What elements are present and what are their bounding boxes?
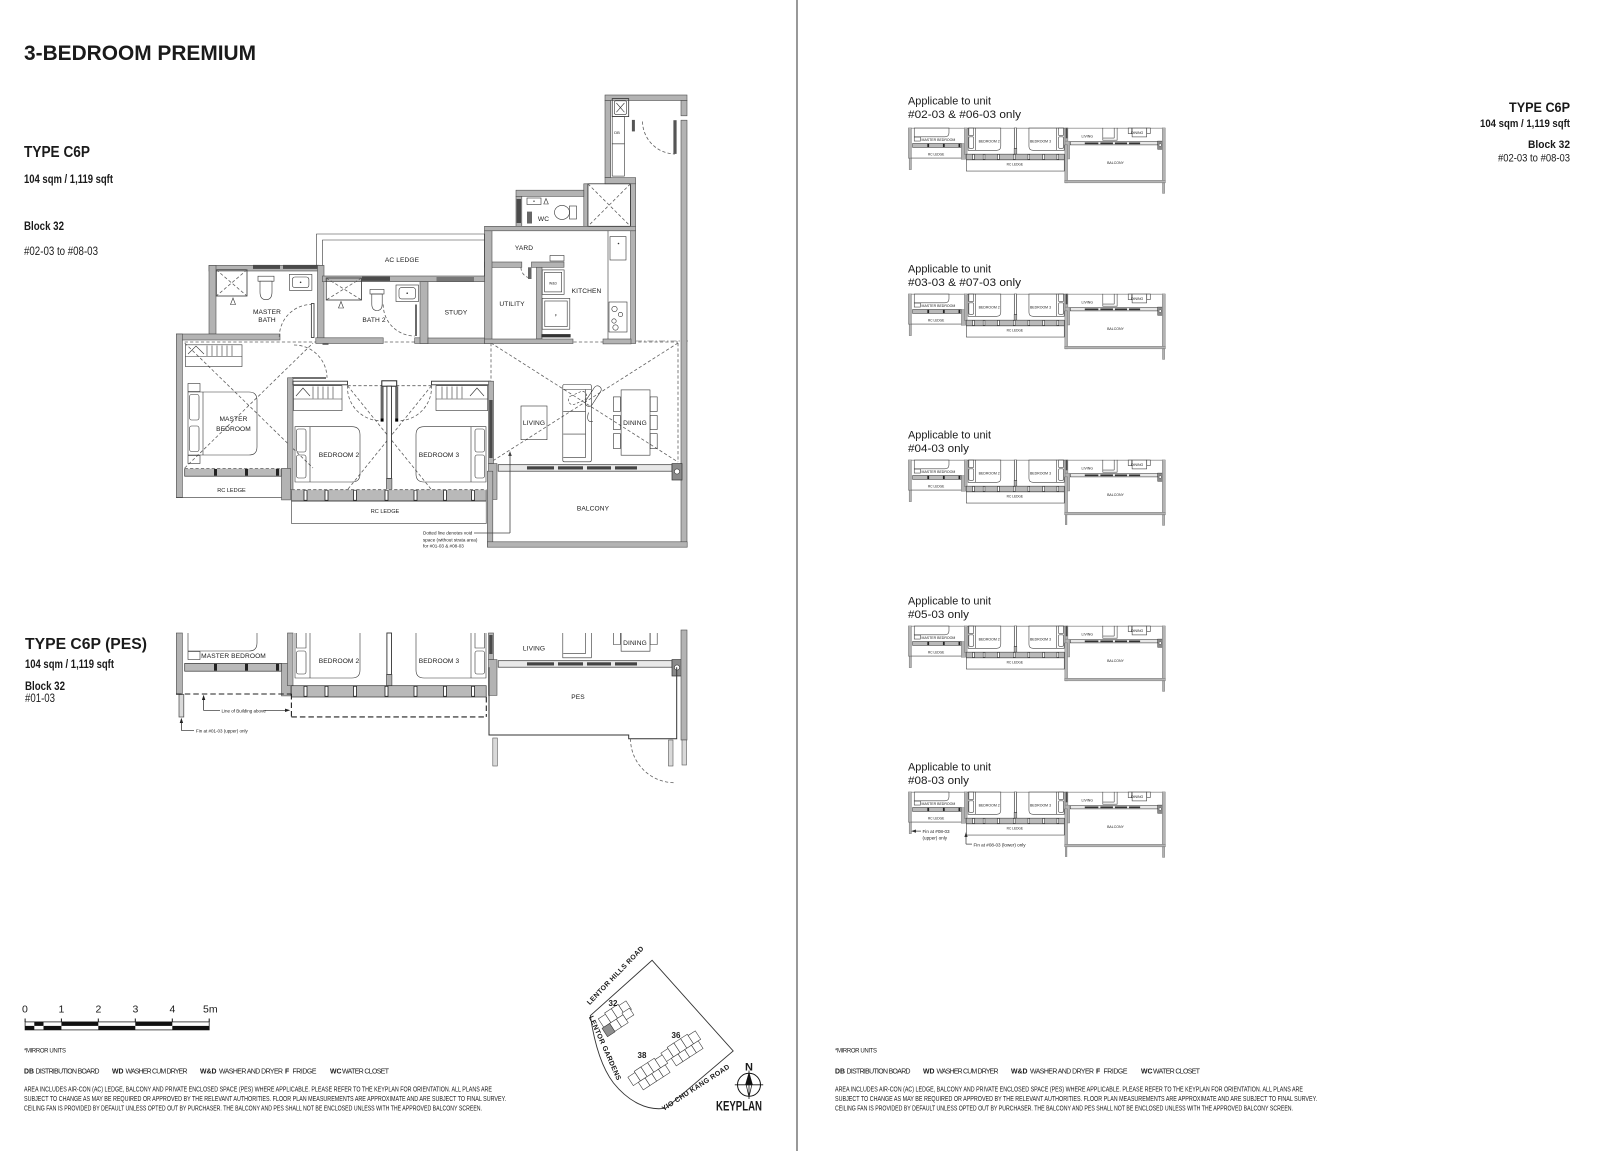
- svg-text:CEILING FAN IS PROVIDED BY DEF: CEILING FAN IS PROVIDED BY DEFAULT UNLES…: [24, 1106, 482, 1113]
- svg-text:BATH: BATH: [258, 317, 276, 324]
- svg-text:(upper) only: (upper) only: [923, 836, 948, 841]
- svg-text:WATER CLOSET: WATER CLOSET: [1153, 1069, 1201, 1076]
- svg-text:104 sqm / 1,119 sqft: 104 sqm / 1,119 sqft: [1480, 118, 1570, 130]
- svg-text:BATH 2: BATH 2: [362, 317, 385, 324]
- svg-text:Fin at #08-03 (lower) only: Fin at #08-03 (lower) only: [974, 843, 1027, 848]
- svg-text:space (without strata area): space (without strata area): [423, 538, 478, 543]
- svg-text:Block 32: Block 32: [1528, 139, 1570, 151]
- svg-text:TYPE C6P: TYPE C6P: [24, 144, 90, 161]
- svg-text:WC: WC: [330, 1069, 342, 1076]
- svg-text:LIVING: LIVING: [523, 420, 545, 427]
- svg-text:TYPE C6P (PES): TYPE C6P (PES): [25, 636, 147, 653]
- svg-text:BALCONY: BALCONY: [577, 506, 610, 513]
- svg-text:DINING: DINING: [623, 420, 647, 427]
- svg-text:KEYPLAN: KEYPLAN: [716, 1099, 762, 1114]
- svg-text:DB: DB: [614, 130, 620, 135]
- svg-text:5m: 5m: [203, 1004, 218, 1016]
- svg-text:WD: WD: [923, 1069, 935, 1076]
- svg-text:#05-03 only: #05-03 only: [908, 609, 970, 621]
- svg-text:FRIDGE: FRIDGE: [1104, 1069, 1128, 1076]
- svg-text:Dotted line denotes void: Dotted line denotes void: [423, 531, 473, 536]
- svg-text:3: 3: [133, 1004, 139, 1016]
- svg-text:BEDROOM 3: BEDROOM 3: [419, 452, 460, 459]
- svg-text:W&D: W&D: [1011, 1069, 1027, 1076]
- svg-text:Block 32: Block 32: [25, 681, 65, 693]
- svg-text:KITCHEN: KITCHEN: [572, 288, 602, 295]
- svg-text:Applicable to unit: Applicable to unit: [908, 96, 991, 108]
- svg-text:FRIDGE: FRIDGE: [293, 1069, 317, 1076]
- svg-text:#01-03: #01-03: [25, 693, 55, 705]
- svg-text:#08-03 only: #08-03 only: [908, 775, 970, 787]
- svg-text:WC: WC: [538, 216, 549, 223]
- svg-text:32: 32: [609, 999, 618, 1008]
- svg-text:2: 2: [96, 1004, 102, 1016]
- svg-text:*MIRROR UNITS: *MIRROR UNITS: [835, 1048, 877, 1054]
- svg-text:WD: WD: [112, 1069, 124, 1076]
- svg-text:#02-03 to #08-03: #02-03 to #08-03: [1498, 153, 1570, 165]
- svg-text:#02-03 to #08-03: #02-03 to #08-03: [24, 246, 98, 258]
- svg-text:36: 36: [672, 1031, 681, 1040]
- svg-text:0: 0: [22, 1004, 28, 1016]
- svg-text:38: 38: [638, 1051, 647, 1060]
- svg-text:STUDY: STUDY: [445, 310, 468, 317]
- svg-text:Line of Building above: Line of Building above: [222, 708, 267, 713]
- svg-text:#03-03 & #07-03 only: #03-03 & #07-03 only: [908, 277, 1022, 289]
- svg-text:WC: WC: [1141, 1069, 1153, 1076]
- svg-text:4: 4: [170, 1004, 176, 1016]
- svg-text:F: F: [285, 1069, 289, 1076]
- svg-text:RC LEDGE: RC LEDGE: [217, 488, 246, 494]
- svg-text:BEDROOM 2: BEDROOM 2: [319, 658, 360, 665]
- svg-text:#02-03 & #06-03 only: #02-03 & #06-03 only: [908, 109, 1022, 121]
- svg-text:WASHER CUM DRYER: WASHER CUM DRYER: [126, 1069, 188, 1076]
- svg-text:BEDROOM 2: BEDROOM 2: [319, 452, 360, 459]
- svg-text:DINING: DINING: [623, 640, 647, 647]
- svg-text:MASTER: MASTER: [219, 416, 247, 423]
- svg-text:MASTER BEDROOM: MASTER BEDROOM: [201, 653, 266, 660]
- svg-text:104 sqm / 1,119 sqft: 104 sqm / 1,119 sqft: [24, 174, 113, 186]
- svg-text:SUBJECT TO CHANGE AS MAY BE RE: SUBJECT TO CHANGE AS MAY BE REQUIRED OR …: [24, 1096, 506, 1103]
- svg-text:SUBJECT TO CHANGE AS MAY BE RE: SUBJECT TO CHANGE AS MAY BE REQUIRED OR …: [835, 1096, 1317, 1103]
- svg-text:BEDROOM 3: BEDROOM 3: [419, 658, 460, 665]
- svg-text:WASHER AND DRYER: WASHER AND DRYER: [219, 1069, 283, 1076]
- svg-text:AREA INCLUDES AIR-CON (AC) LED: AREA INCLUDES AIR-CON (AC) LEDGE, BALCON…: [835, 1087, 1303, 1094]
- svg-text:Applicable to unit: Applicable to unit: [908, 430, 991, 442]
- svg-text:DISTRIBUTION BOARD: DISTRIBUTION BOARD: [847, 1069, 911, 1076]
- svg-text:Applicable to unit: Applicable to unit: [908, 596, 991, 608]
- svg-text:DB: DB: [835, 1069, 845, 1076]
- svg-text:*MIRROR UNITS: *MIRROR UNITS: [24, 1048, 66, 1054]
- svg-text:W&D: W&D: [200, 1069, 216, 1076]
- svg-text:DISTRIBUTION BOARD: DISTRIBUTION BOARD: [36, 1069, 100, 1076]
- svg-text:Applicable to unit: Applicable to unit: [908, 762, 991, 774]
- svg-text:PES: PES: [571, 694, 585, 701]
- svg-text:WATER CLOSET: WATER CLOSET: [342, 1069, 390, 1076]
- svg-text:BEDROOM: BEDROOM: [216, 426, 251, 433]
- svg-text:DB: DB: [24, 1069, 34, 1076]
- svg-text:3-BEDROOM PREMIUM: 3-BEDROOM PREMIUM: [24, 42, 256, 65]
- svg-text:RC LEDGE: RC LEDGE: [371, 509, 400, 515]
- svg-text:LIVING: LIVING: [523, 646, 545, 653]
- svg-text:UTILITY: UTILITY: [499, 301, 525, 308]
- svg-text:AC LEDGE: AC LEDGE: [385, 257, 420, 264]
- svg-text:W&D: W&D: [549, 282, 557, 286]
- svg-text:Block 32: Block 32: [24, 221, 64, 233]
- svg-text:104 sqm / 1,119 sqft: 104 sqm / 1,119 sqft: [25, 659, 114, 671]
- svg-text:MASTER: MASTER: [253, 309, 281, 316]
- svg-text:WASHER AND DRYER: WASHER AND DRYER: [1030, 1069, 1094, 1076]
- svg-text:Fin at #01-03 (upper) only: Fin at #01-03 (upper) only: [196, 728, 249, 733]
- svg-text:#04-03 only: #04-03 only: [908, 443, 970, 455]
- svg-text:WASHER CUM DRYER: WASHER CUM DRYER: [937, 1069, 999, 1076]
- svg-text:TYPE C6P: TYPE C6P: [1509, 100, 1570, 115]
- svg-text:Fin at #08-03: Fin at #08-03: [923, 829, 951, 834]
- svg-text:CEILING FAN IS PROVIDED BY DEF: CEILING FAN IS PROVIDED BY DEFAULT UNLES…: [835, 1106, 1293, 1113]
- svg-text:1: 1: [59, 1004, 65, 1016]
- svg-text:Applicable to unit: Applicable to unit: [908, 264, 991, 276]
- svg-text:F: F: [1096, 1069, 1100, 1076]
- svg-text:YARD: YARD: [515, 245, 533, 252]
- svg-text:for #01-03 & #08-03: for #01-03 & #08-03: [423, 544, 464, 549]
- svg-text:AREA INCLUDES AIR-CON (AC) LED: AREA INCLUDES AIR-CON (AC) LEDGE, BALCON…: [24, 1087, 492, 1094]
